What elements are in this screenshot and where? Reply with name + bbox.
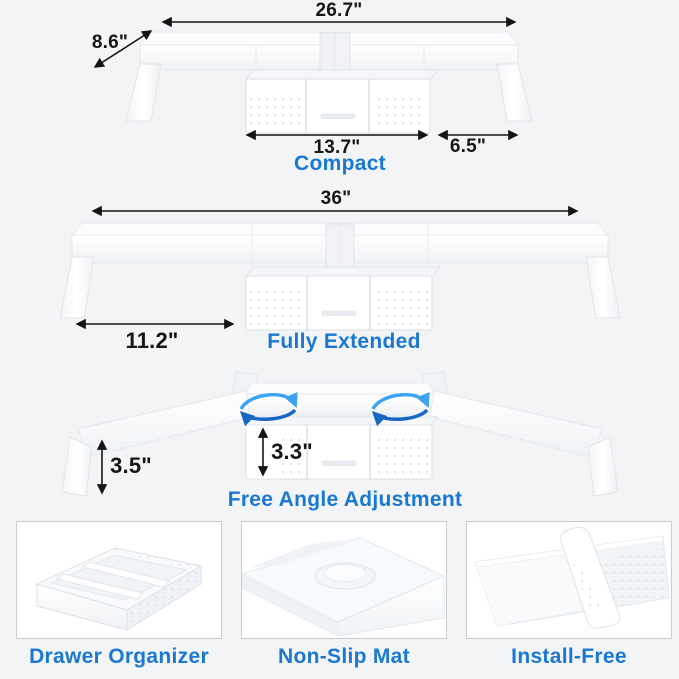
dim-label-extension: 11.2" (125, 328, 178, 354)
feature-label-drawer-organizer: Drawer Organizer (29, 645, 209, 669)
feature-card-drawer-organizer (16, 521, 222, 639)
right-leg (497, 64, 532, 121)
non-slip-mat-image (242, 522, 446, 638)
left-wing (78, 391, 250, 457)
left-leg (60, 257, 94, 318)
feature-card-non-slip-mat (241, 521, 447, 639)
section-label-compact: Compact (294, 152, 386, 176)
feature-label-install-free: Install-Free (511, 645, 627, 669)
feature-label-non-slip-mat: Non-Slip Mat (278, 645, 410, 669)
drawer-handle (321, 114, 355, 119)
left-leg (126, 64, 161, 121)
drawer-handle (322, 311, 356, 316)
section-label-free-angle: Free Angle Adjustment (228, 488, 463, 512)
drawer-organizer (246, 267, 440, 330)
drawer-handle (322, 461, 356, 466)
right-wing (430, 391, 602, 457)
install-free-image (467, 522, 671, 638)
left-leg (62, 437, 92, 496)
drawer-organizer (246, 70, 438, 133)
dim-label-leg-height: 3.5" (110, 453, 152, 479)
right-leg (586, 257, 620, 318)
drawer-organizer-image (17, 522, 221, 638)
dim-label-depth: 8.6" (92, 32, 128, 54)
product-infographic: 26.7" 8.6" 13.7" 6.5" Compact 36" 11.2" … (0, 0, 679, 679)
right-leg (588, 437, 618, 496)
dim-label-side-width: 6.5" (450, 136, 486, 158)
dim-label-total-width: 36" (321, 188, 352, 210)
section-label-fully-extended: Fully Extended (267, 330, 421, 354)
feature-card-install-free (466, 521, 672, 639)
dim-label-drawer-height: 3.3" (271, 439, 313, 465)
dim-label-total-width: 26.7" (316, 0, 363, 22)
